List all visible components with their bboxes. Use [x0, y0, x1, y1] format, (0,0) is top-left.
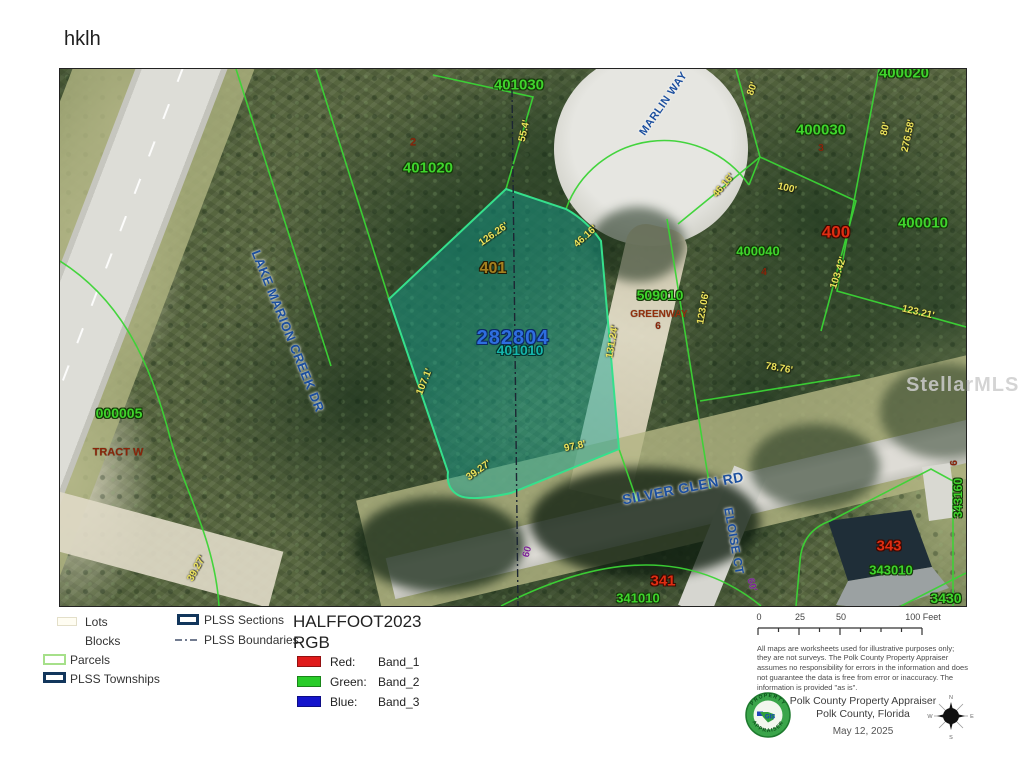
band-channel: Blue:	[330, 695, 376, 709]
plss-townships-swatch-icon	[43, 672, 66, 683]
legend-item-plss-boundaries: PLSS Boundaries	[204, 633, 299, 647]
map-label: 6	[950, 460, 960, 466]
map-viewport: 401030MARLIN WAY240102055.4'40002080'400…	[59, 68, 967, 607]
map-label: 401	[480, 261, 507, 277]
legend-item-blocks: Blocks	[85, 634, 120, 648]
map-label: 401010	[497, 343, 544, 357]
map-label: 60'	[744, 577, 757, 593]
map-label: 343010	[869, 564, 912, 577]
map-label: 2	[410, 138, 416, 149]
map-label: 343160	[952, 478, 964, 518]
compass-w: W	[927, 714, 933, 720]
band-value: Band_2	[378, 675, 419, 689]
map-label: 400010	[898, 216, 948, 231]
legend-item-lots: Lots	[85, 615, 108, 629]
logo-gis-text: GIS	[765, 715, 775, 721]
blue-band-swatch	[297, 696, 321, 707]
map-label: 000005	[96, 406, 143, 420]
raster-layer-subtitle: RGB	[293, 633, 330, 653]
map-label: 6	[655, 322, 661, 332]
legend-item-plss-townships: PLSS Townships	[70, 672, 160, 686]
tree-canopy	[590, 207, 685, 282]
compass-e: E	[970, 714, 974, 720]
stellar-mls-watermark: StellarMLS	[906, 374, 1019, 397]
legend-item-parcels: Parcels	[70, 653, 110, 667]
compass-n: N	[949, 695, 953, 701]
compass-s: S	[949, 735, 953, 741]
credits-region: Polk County, Florida	[778, 708, 948, 720]
legend-item-plss-sections: PLSS Sections	[204, 613, 284, 627]
red-band-swatch	[297, 656, 321, 667]
map-label: 341010	[616, 592, 659, 605]
map-label: 400040	[736, 245, 779, 258]
scalebar-label: 50	[836, 612, 846, 622]
band-value: Band_1	[378, 655, 419, 669]
map-label: 400030	[796, 123, 846, 138]
map-label: 400	[822, 224, 850, 241]
scalebar-label: 25	[795, 612, 805, 622]
scalebar-label: 0	[756, 612, 761, 622]
map-label: 509010	[637, 288, 684, 302]
page-title: hklh	[64, 28, 101, 51]
map-label: TRACT W	[93, 448, 144, 459]
scalebar	[755, 624, 955, 638]
plss-sections-swatch-icon	[177, 614, 199, 625]
map-label: 401020	[403, 161, 453, 176]
plss-boundaries-line-icon	[174, 636, 200, 644]
tree-canopy	[750, 424, 880, 509]
map-label: 343	[876, 539, 901, 554]
credits-block: Polk County Property Appraiser Polk Coun…	[778, 695, 948, 737]
lots-swatch-icon	[57, 617, 77, 626]
parcels-swatch-icon	[43, 654, 66, 665]
credits-org: Polk County Property Appraiser	[778, 695, 948, 707]
map-label: 341	[650, 574, 675, 589]
map-report-page: hklh	[0, 0, 1024, 768]
disclaimer-text: All maps are worksheets used for illustr…	[757, 644, 969, 693]
credits-date: May 12, 2025	[778, 726, 948, 737]
scalebar-label: 100 Feet	[905, 612, 941, 622]
raster-layer-title: HALFFOOT2023	[293, 612, 422, 632]
map-label: 400020	[879, 68, 929, 81]
band-value: Band_3	[378, 695, 419, 709]
map-label: 3	[818, 144, 824, 154]
map-label: 401030	[494, 78, 544, 93]
map-label: GREENWAY	[630, 310, 687, 320]
map-label: 3430	[930, 591, 961, 605]
band-channel: Red:	[330, 655, 376, 669]
green-band-swatch	[297, 676, 321, 687]
band-channel: Green:	[330, 675, 376, 689]
compass-rose-icon: N E S W	[926, 692, 976, 742]
tree-canopy	[355, 497, 525, 592]
map-label: 4	[761, 268, 767, 278]
